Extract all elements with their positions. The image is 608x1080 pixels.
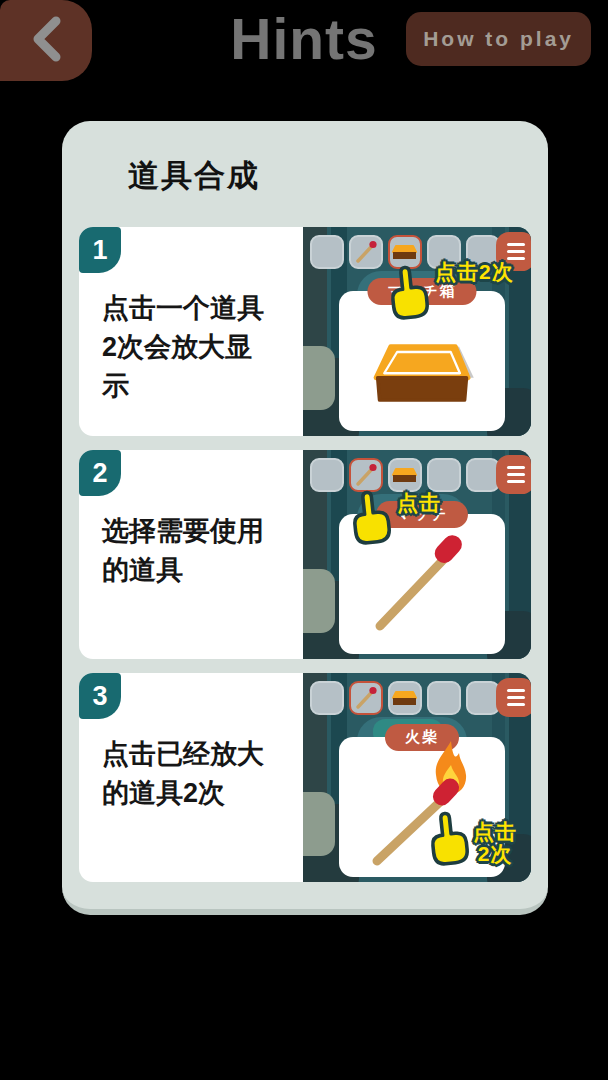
step-scene-1: マッチ箱 点击2次 xyxy=(303,227,531,436)
step-number-badge: 3 xyxy=(79,673,121,719)
tap-callout: 点击 xyxy=(397,492,441,514)
forest-rock xyxy=(303,792,335,856)
step-text: 点击已经放大 的道具2次 xyxy=(102,735,298,813)
inventory-bar xyxy=(310,681,500,715)
hints-screen: Hints How to play 道具合成 1 点击一个道具 2次会放大显 示 xyxy=(0,0,608,1080)
step-scene-3: 火柴 点击 2次 xyxy=(303,673,531,882)
inventory-slot-empty xyxy=(466,681,500,715)
matchbox-icon xyxy=(390,460,420,490)
step-scene-2: マッチ 点击 xyxy=(303,450,531,659)
inventory-slot-empty xyxy=(427,458,461,492)
step-text: 选择需要使用 的道具 xyxy=(102,512,298,590)
panel-title: 道具合成 xyxy=(128,155,260,197)
hand-cursor-icon xyxy=(340,484,397,555)
match-icon xyxy=(351,237,381,267)
step-number-badge: 1 xyxy=(79,227,121,273)
menu-icon xyxy=(496,678,531,717)
tap-callout: 点击 2次 xyxy=(473,821,517,865)
hand-cursor-icon xyxy=(418,805,475,876)
inventory-slot-empty xyxy=(310,235,344,269)
inventory-slot-empty xyxy=(310,458,344,492)
hand-cursor-icon xyxy=(378,259,435,330)
inventory-slot-matchbox xyxy=(388,681,422,715)
inventory-slot-empty xyxy=(466,458,500,492)
inventory-slot-matchbox xyxy=(388,458,422,492)
forest-rock xyxy=(303,569,335,633)
matchbox-art xyxy=(363,339,483,413)
step-text: 点击一个道具 2次会放大显 示 xyxy=(102,289,298,406)
step-card-1: 1 点击一个道具 2次会放大显 示 xyxy=(79,227,531,436)
how-to-play-button[interactable]: How to play xyxy=(406,12,591,66)
step-card-3: 3 点击已经放大 的道具2次 xyxy=(79,673,531,882)
matchbox-icon xyxy=(390,683,420,713)
step-number-badge: 2 xyxy=(79,450,121,496)
tap-callout: 点击2次 xyxy=(435,261,514,283)
match-icon xyxy=(351,683,381,713)
inventory-slot-match-selected xyxy=(349,681,383,715)
menu-icon xyxy=(496,455,531,494)
inventory-slot-empty xyxy=(427,681,461,715)
hints-panel: 道具合成 1 点击一个道具 2次会放大显 示 xyxy=(62,121,548,915)
inventory-bar xyxy=(310,458,500,492)
steps-list: 1 点击一个道具 2次会放大显 示 xyxy=(79,227,531,882)
step-card-2: 2 选择需要使用 的道具 xyxy=(79,450,531,659)
inventory-slot-empty xyxy=(310,681,344,715)
forest-rock xyxy=(303,346,335,410)
